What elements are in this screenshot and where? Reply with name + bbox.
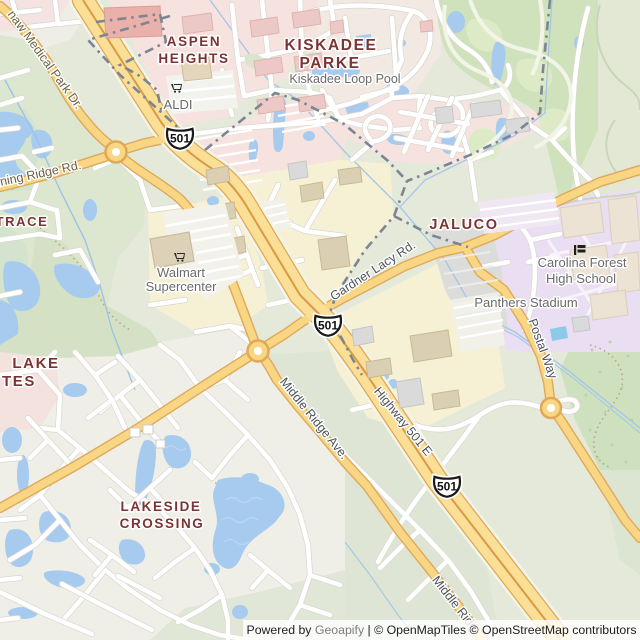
svg-text:TES: TES [2, 373, 36, 390]
svg-text:LAKE: LAKE [12, 355, 59, 372]
svg-text:501: 501 [437, 480, 457, 494]
svg-text:LAKESIDE: LAKESIDE [120, 499, 201, 514]
svg-text:JALUCO: JALUCO [429, 217, 498, 233]
svg-text:Carolina Forest: Carolina Forest [538, 255, 627, 270]
svg-text:High School: High School [546, 271, 616, 286]
svg-text:Supercenter: Supercenter [146, 279, 217, 294]
svg-text:501: 501 [318, 319, 338, 333]
svg-text:Panthers Stadium: Panthers Stadium [474, 295, 577, 310]
svg-text:ASPEN: ASPEN [167, 34, 222, 49]
svg-text:HEIGHTS: HEIGHTS [158, 51, 229, 66]
svg-text:Walmart: Walmart [157, 265, 205, 280]
svg-text:Kiskadee Loop Pool: Kiskadee Loop Pool [289, 72, 400, 86]
svg-text:CROSSING: CROSSING [120, 516, 205, 531]
svg-text:501: 501 [170, 132, 190, 146]
svg-text:TRACE: TRACE [0, 214, 48, 229]
svg-text:KISKADEE: KISKADEE [285, 37, 378, 54]
svg-text:PARKE: PARKE [299, 55, 360, 72]
svg-text:ALDI: ALDI [164, 97, 193, 112]
